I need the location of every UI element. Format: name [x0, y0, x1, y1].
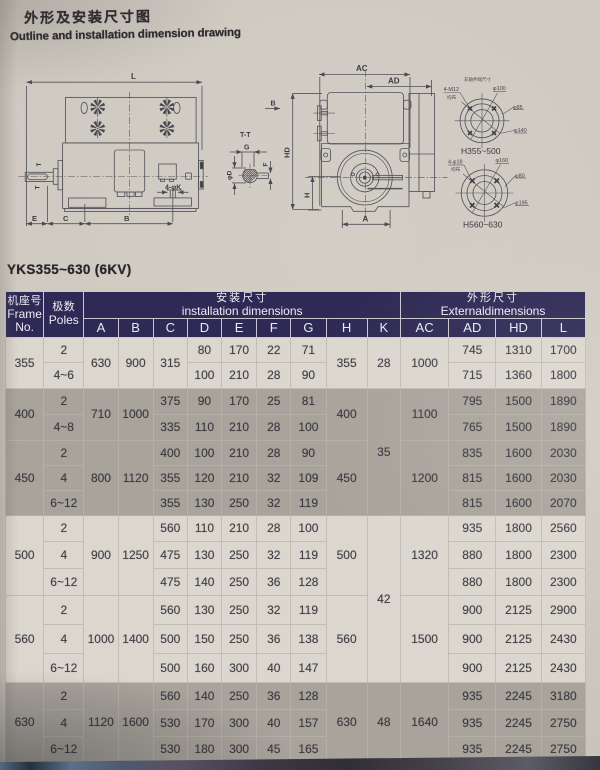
svg-text:4-M12: 4-M12: [444, 87, 460, 93]
svg-text:φD: φD: [227, 170, 234, 180]
svg-text:φ100: φ100: [493, 86, 506, 92]
svg-text:HD: HD: [283, 147, 292, 158]
svg-text:φ80: φ80: [515, 174, 525, 180]
svg-text:H: H: [303, 193, 312, 198]
svg-text:T-T: T-T: [240, 132, 251, 139]
svg-text:B: B: [124, 214, 130, 223]
svg-text:φ160: φ160: [496, 158, 509, 164]
svg-text:AC: AC: [356, 64, 368, 73]
svg-text:均布: 均布: [447, 94, 457, 101]
svg-text:H355~500: H355~500: [461, 146, 501, 156]
svg-text:非轴伸端尺寸: 非轴伸端尺寸: [464, 76, 491, 83]
svg-text:AD: AD: [388, 77, 400, 86]
svg-text:T: T: [36, 163, 43, 167]
svg-text:4-φ18: 4-φ18: [448, 160, 463, 166]
svg-text:H560~630: H560~630: [463, 220, 503, 230]
svg-text:C: C: [63, 214, 69, 223]
svg-text:A: A: [363, 215, 369, 224]
svg-text:B: B: [271, 101, 276, 108]
svg-text:L: L: [131, 72, 136, 81]
svg-text:φ85: φ85: [513, 105, 523, 111]
svg-text:T: T: [35, 186, 42, 190]
svg-text:E: E: [32, 214, 37, 223]
svg-text:均布: 均布: [451, 166, 461, 173]
svg-text:G: G: [244, 145, 250, 152]
svg-text:F: F: [263, 163, 270, 167]
